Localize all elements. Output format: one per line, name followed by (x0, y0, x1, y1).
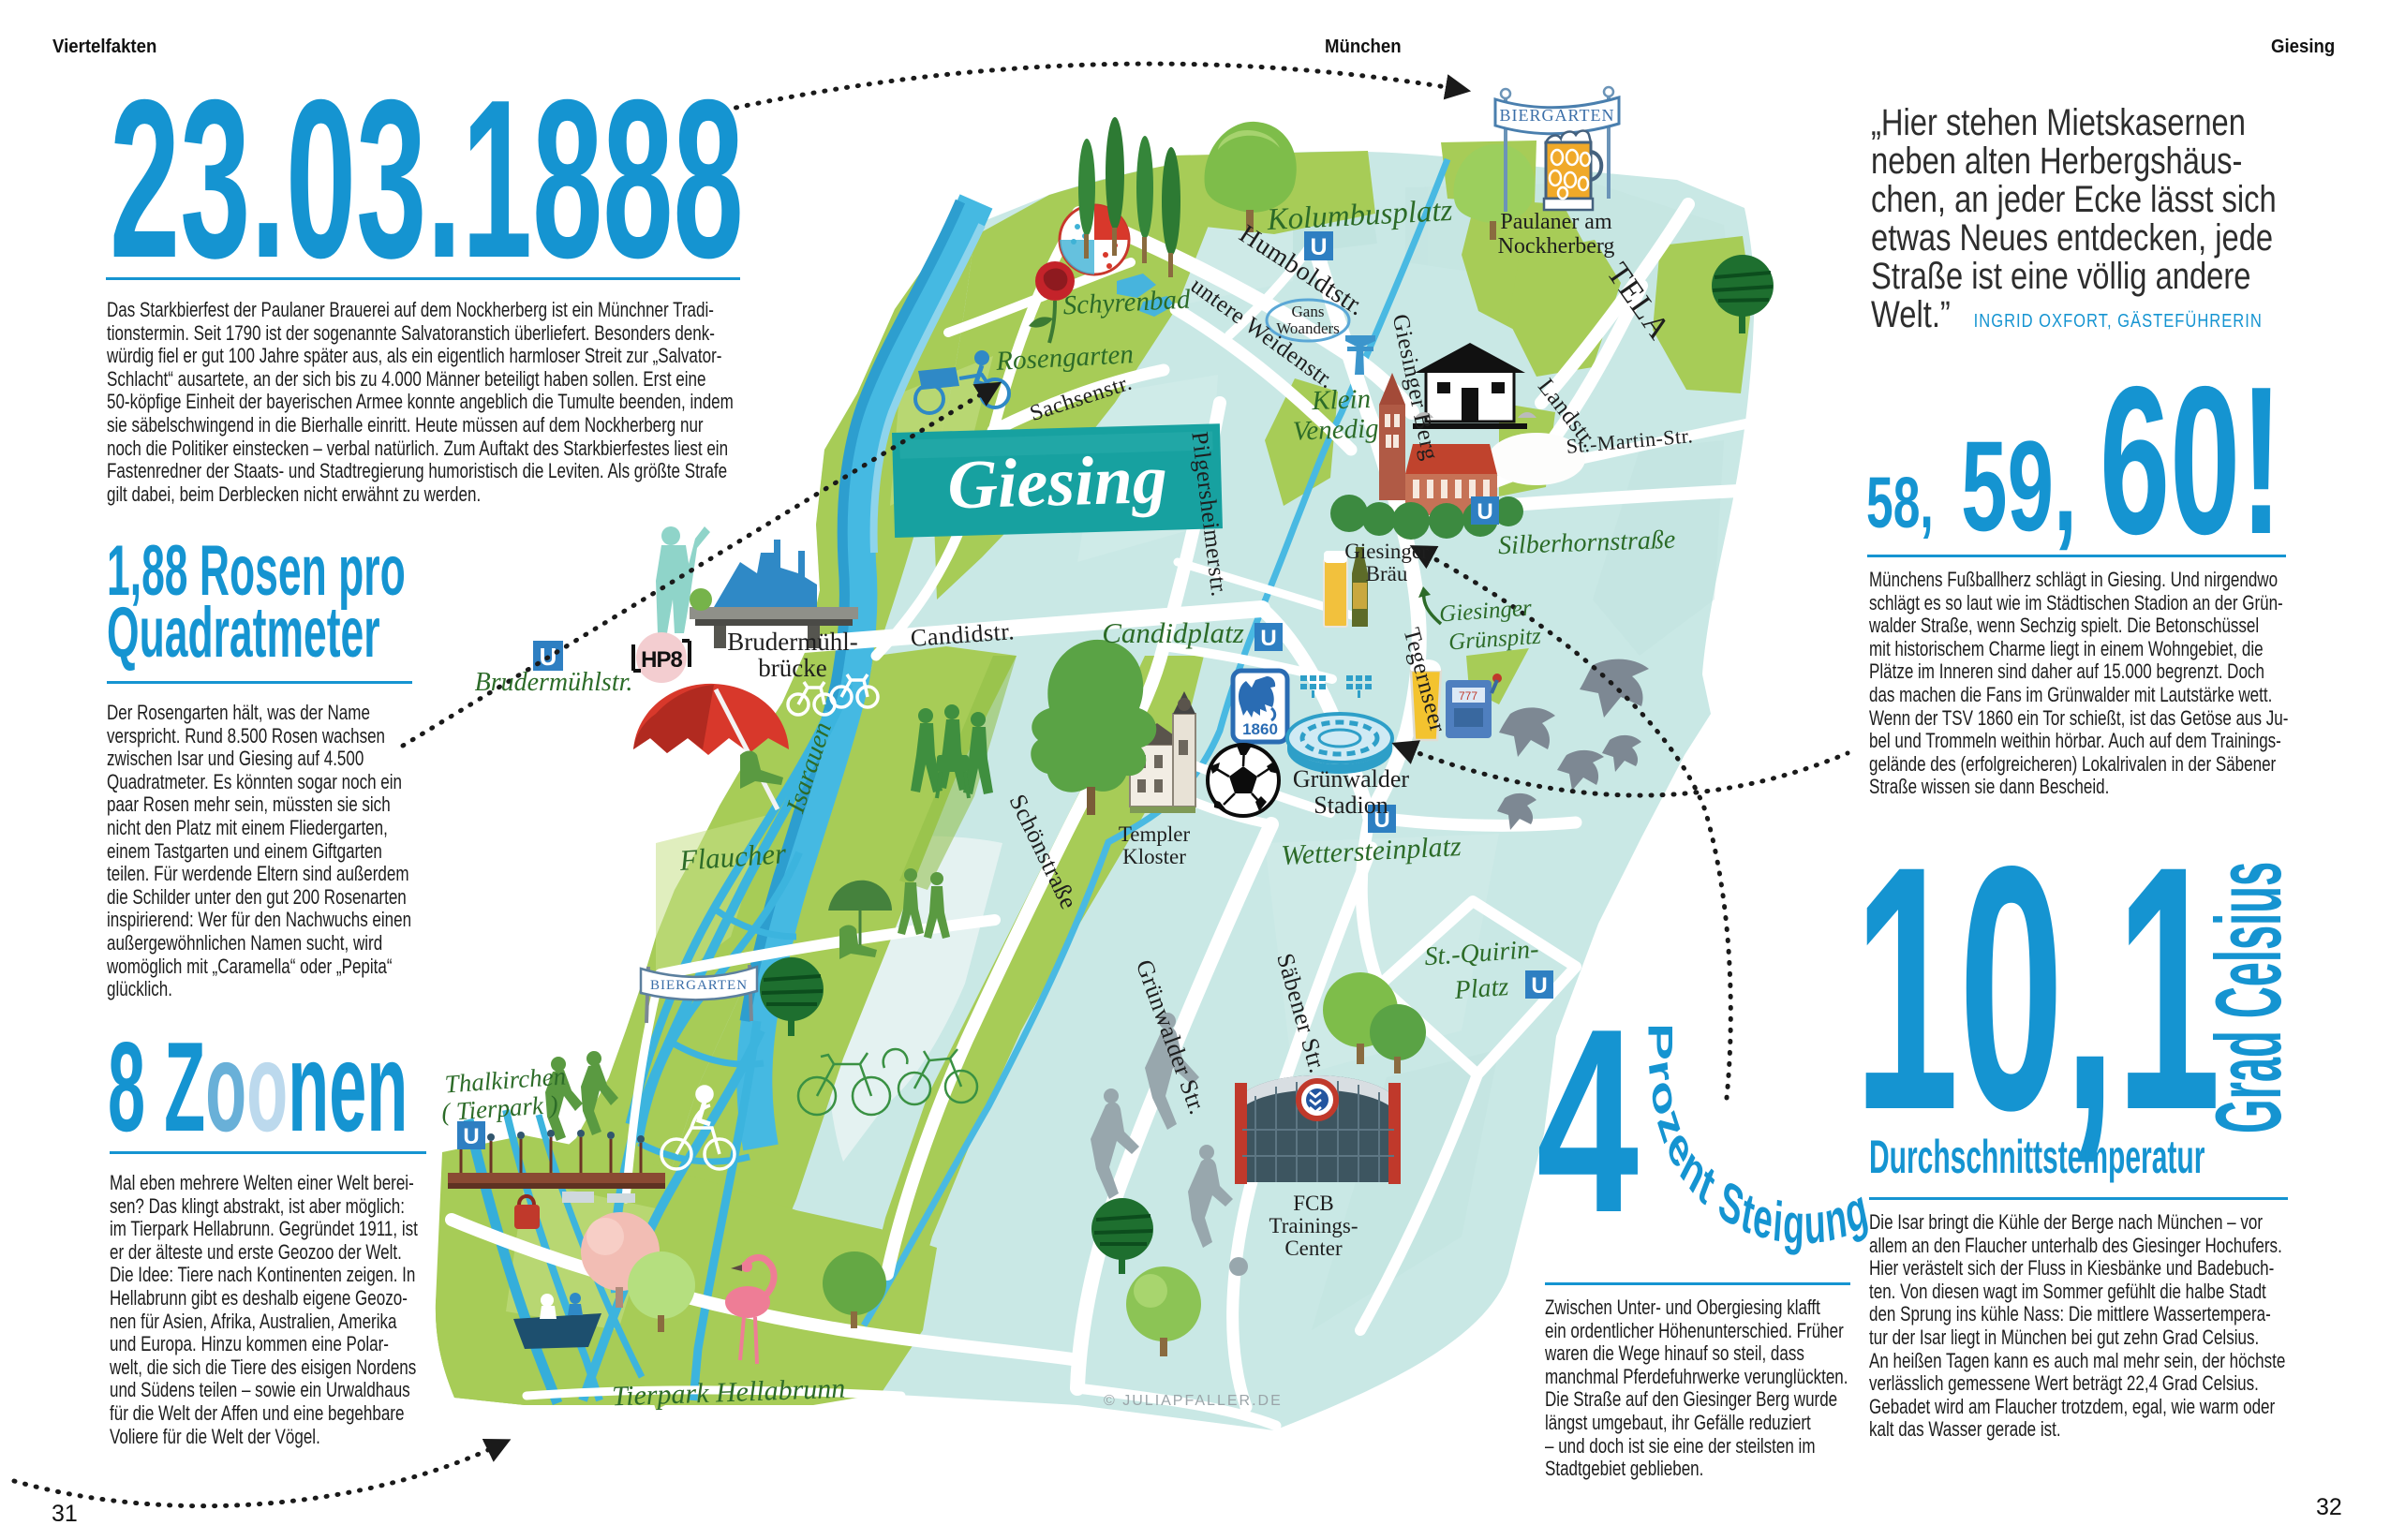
svg-text:Kloster: Kloster (1122, 845, 1186, 868)
svg-text:Giesing: Giesing (946, 441, 1168, 525)
svg-text:U: U (1310, 234, 1327, 260)
svg-text:Prozent Steigung: Prozent Steigung (1640, 1023, 1873, 1256)
svg-text:U: U (463, 1124, 479, 1149)
svg-text:Brudermühlstr.: Brudermühlstr. (475, 668, 633, 697)
svg-text:777: 777 (1459, 689, 1477, 703)
svg-text:Candidplatz: Candidplatz (1102, 616, 1244, 649)
svg-text:1860: 1860 (1242, 720, 1278, 738)
svg-text:Giesinger: Giesinger (1344, 540, 1429, 563)
svg-text:BIERGARTEN: BIERGARTEN (1500, 106, 1615, 125)
svg-text:Trainings-: Trainings- (1269, 1214, 1358, 1237)
svg-text:Venedig: Venedig (1292, 413, 1379, 446)
svg-text:Center: Center (1284, 1236, 1343, 1260)
svg-text:HP8: HP8 (641, 647, 682, 673)
svg-text:Gans: Gans (1292, 303, 1325, 320)
svg-text:Grünwalder: Grünwalder (1293, 765, 1410, 792)
svg-text:© JULIAPFALLER.DE: © JULIAPFALLER.DE (1104, 1393, 1283, 1409)
svg-text:Templer: Templer (1119, 822, 1191, 846)
svg-text:U: U (1260, 626, 1276, 651)
svg-text:Nockherberg: Nockherberg (1498, 234, 1615, 259)
svg-text:Stadion: Stadion (1314, 792, 1388, 819)
svg-text:Brudermühl-: Brudermühl- (727, 628, 857, 656)
svg-text:FCB: FCB (1293, 1192, 1333, 1215)
svg-text:Silberhornstraße: Silberhornstraße (1498, 526, 1676, 561)
svg-text:brücke: brücke (758, 654, 826, 682)
svg-text:Bräu: Bräu (1366, 562, 1408, 585)
svg-text:Paulaner am: Paulaner am (1500, 210, 1612, 234)
svg-text:U: U (1477, 499, 1492, 525)
